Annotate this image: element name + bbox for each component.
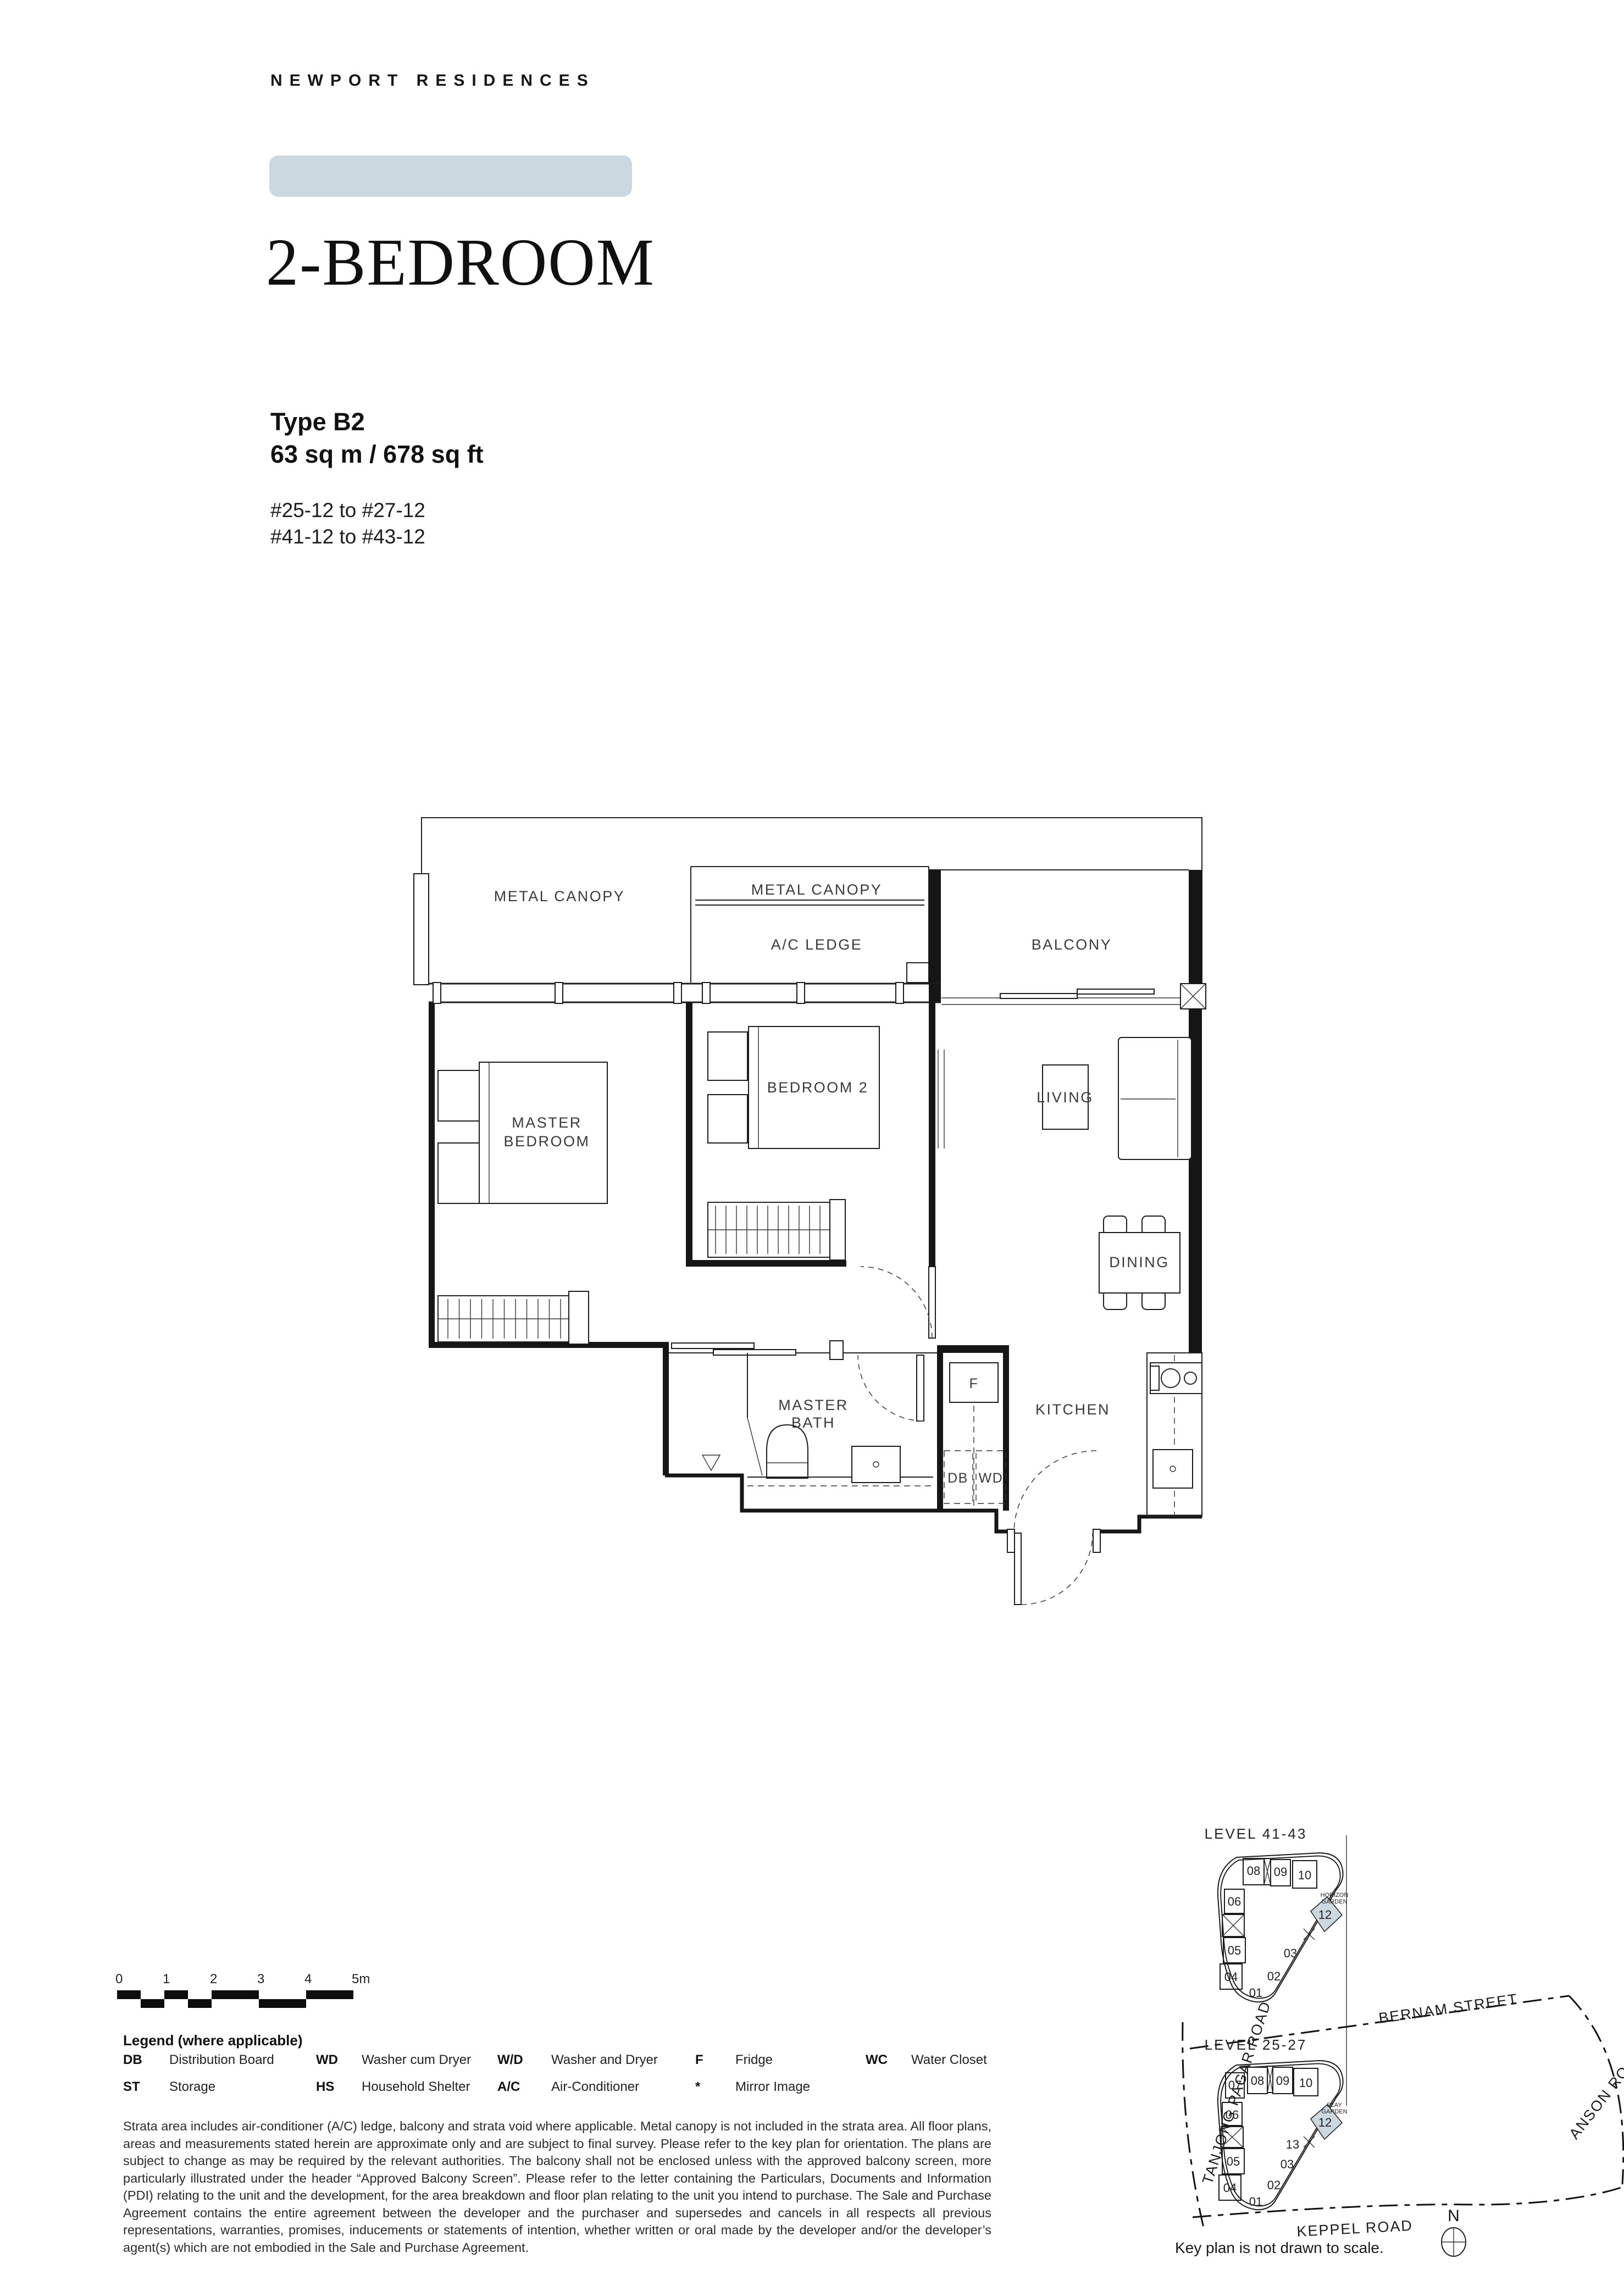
legend-label-st: Storage bbox=[169, 2079, 215, 2095]
svg-text:BEDROOM: BEDROOM bbox=[503, 1133, 590, 1150]
metal-canopy-left-label: METAL CANOPY bbox=[494, 888, 625, 904]
toilet bbox=[767, 1425, 808, 1478]
key-plan-unit: 06 bbox=[1228, 1895, 1241, 1908]
living-label: LIVING bbox=[1037, 1089, 1094, 1106]
nightstand bbox=[708, 1095, 747, 1143]
bath-sliding-door bbox=[672, 1343, 754, 1348]
legend-label-mirror: Mirror Image bbox=[735, 2079, 810, 2095]
accent-bar bbox=[269, 156, 632, 197]
entrance-door bbox=[1015, 1533, 1021, 1605]
tanjong-pagar-road-line bbox=[1183, 2022, 1205, 2232]
key-plan-unit: 10 bbox=[1299, 2076, 1312, 2090]
dining-chair bbox=[1142, 1216, 1165, 1235]
legend-label-wd: Washer cum Dryer bbox=[362, 2052, 471, 2068]
scale-tick: 1 bbox=[163, 1972, 170, 1987]
scale-bar: 012345m bbox=[117, 1972, 370, 2014]
vanity-sink bbox=[852, 1446, 900, 1483]
upper-garden-line2: GARDEN bbox=[1321, 1899, 1347, 1905]
nightstand bbox=[708, 1032, 747, 1080]
scale-tick: 0 bbox=[115, 1972, 123, 1987]
nightstand bbox=[438, 1070, 479, 1121]
legend-abbr-db: DB bbox=[123, 2052, 142, 2068]
key-plan-unit: 08 bbox=[1247, 1864, 1260, 1878]
fridge-label: F bbox=[969, 1376, 979, 1391]
keyplan-note: Key plan is not drawn to scale. bbox=[1175, 2239, 1384, 2256]
key-plan-unit: 10 bbox=[1298, 1868, 1311, 1882]
legend-label-db: Distribution Board bbox=[169, 2052, 274, 2068]
key-plan-unit: 01 bbox=[1249, 1986, 1262, 2000]
legend-abbr-wc: WC bbox=[866, 2052, 888, 2068]
key-plan-unit: 05 bbox=[1228, 1944, 1241, 1957]
legend-title: Legend (where applicable) bbox=[123, 2032, 303, 2049]
legend-abbr-f: F bbox=[695, 2052, 703, 2068]
key-plan-unit: 13 bbox=[1286, 2138, 1299, 2151]
key-plan-unit: 05 bbox=[1227, 2155, 1240, 2168]
lower-garden-line1: PLAY bbox=[1327, 2102, 1342, 2108]
wall bbox=[1189, 870, 1202, 984]
unit-area: 63 sq m / 678 sq ft bbox=[270, 440, 484, 469]
legend-abbr-w-d: W/D bbox=[497, 2052, 523, 2068]
key-plan-unit: 01 bbox=[1249, 2195, 1262, 2208]
bedroom2-door bbox=[929, 1267, 935, 1338]
kitchen-door-arc bbox=[1014, 1451, 1096, 1533]
legend-abbr-mirror: * bbox=[695, 2079, 700, 2095]
upper-garden-line1: HORIZON bbox=[1321, 1892, 1349, 1899]
key-plan: LEVEL 41-43 HORIZON GARDEN 0809100605040… bbox=[1154, 1802, 1624, 2291]
brand-text: NEWPORT RESIDENCES bbox=[270, 71, 595, 90]
upper-level-label: LEVEL 41-43 bbox=[1205, 1825, 1307, 1842]
dining-chair bbox=[1142, 1291, 1165, 1309]
scale-tick: 4 bbox=[304, 1972, 312, 1987]
key-plan-unit: 09 bbox=[1274, 1865, 1287, 1879]
floor-trap-icon bbox=[702, 1455, 720, 1470]
legend-label-hs: Household Shelter bbox=[362, 2079, 470, 2095]
legend-abbr-ac: A/C bbox=[497, 2079, 520, 2095]
legend-abbr-wd: WD bbox=[316, 2052, 338, 2068]
key-plan-unit: 03 bbox=[1284, 1946, 1297, 1960]
anson-road-label: ANSON ROAD bbox=[1566, 2045, 1624, 2142]
scale-tick: 5m bbox=[352, 1972, 370, 1987]
bath-door bbox=[917, 1355, 924, 1421]
key-plan-unit: 02 bbox=[1267, 1969, 1281, 1983]
wd-label: WD bbox=[979, 1470, 1004, 1486]
nightstand bbox=[438, 1143, 479, 1203]
key-plan-unit: 02 bbox=[1267, 2178, 1281, 2192]
disclaimer-text: Strata area includes air-conditioner (A/… bbox=[123, 2118, 991, 2256]
dining-chair bbox=[1104, 1291, 1127, 1309]
balcony-label: BALCONY bbox=[1032, 936, 1112, 953]
scale-tick: 2 bbox=[210, 1972, 217, 1987]
key-plan-unit: 04 bbox=[1223, 2181, 1237, 2195]
legend-label-ac: Air-Conditioner bbox=[551, 2079, 639, 2095]
window-mullions bbox=[433, 983, 904, 1003]
stack-range-1: #25-12 to #27-12 bbox=[270, 499, 425, 522]
sofa bbox=[1118, 1037, 1191, 1159]
wall-pillar bbox=[414, 874, 429, 985]
stack-range-2: #41-12 to #43-12 bbox=[270, 525, 425, 548]
brochure-page: NEWPORT RESIDENCES 2-BEDROOM Type B2 63 … bbox=[0, 0, 1624, 2292]
ac-ledge-label: A/C LEDGE bbox=[771, 936, 863, 953]
unit-type: Type B2 bbox=[270, 408, 365, 436]
master-bath-label: MASTER bbox=[778, 1397, 849, 1413]
key-plan-unit: 03 bbox=[1281, 2157, 1294, 2171]
north-label: N bbox=[1448, 2207, 1460, 2225]
floor-plan: METAL CANOPY METAL CANOPY A/C LEDGE BALC… bbox=[357, 769, 1209, 1731]
keppel-road-label: KEPPEL ROAD bbox=[1296, 2217, 1414, 2240]
kitchen-label: KITCHEN bbox=[1035, 1401, 1110, 1418]
metal-canopy-mid-label: METAL CANOPY bbox=[751, 881, 883, 898]
key-plan-upper-building: HORIZON GARDEN 08091006050401020312 bbox=[1218, 1853, 1349, 2002]
scale-tick: 3 bbox=[257, 1972, 264, 1987]
wall bbox=[429, 1002, 435, 1345]
page-title: 2-BEDROOM bbox=[266, 224, 655, 301]
db-label: DB bbox=[947, 1470, 968, 1486]
svg-text:BATH: BATH bbox=[791, 1414, 835, 1431]
key-plan-unit: 12 bbox=[1318, 2116, 1332, 2129]
lower-garden-line2: GARDEN bbox=[1321, 2108, 1347, 2115]
key-plan-unit: 09 bbox=[1276, 2074, 1289, 2088]
legend-abbr-st: ST bbox=[123, 2079, 140, 2095]
legend-label-w-d: Washer and Dryer bbox=[551, 2052, 658, 2068]
dining-label: DINING bbox=[1109, 1254, 1169, 1270]
sink-cabinet bbox=[1153, 1450, 1193, 1488]
legend-label-f: Fridge bbox=[735, 2052, 773, 2068]
bernam-street-label: BERNAM STREET bbox=[1378, 1991, 1519, 2027]
bedroom2-label: BEDROOM 2 bbox=[767, 1079, 869, 1096]
legend-abbr-hs: HS bbox=[316, 2079, 334, 2095]
compass-icon: N bbox=[1442, 2207, 1466, 2256]
dining-chair bbox=[1104, 1216, 1127, 1235]
key-plan-unit: 12 bbox=[1318, 1908, 1332, 1922]
key-plan-unit: 04 bbox=[1224, 1970, 1238, 1984]
master-bedroom-label: MASTER bbox=[512, 1114, 582, 1131]
key-plan-unit: 08 bbox=[1251, 2074, 1264, 2088]
legend-label-wc: Water Closet bbox=[911, 2052, 987, 2068]
